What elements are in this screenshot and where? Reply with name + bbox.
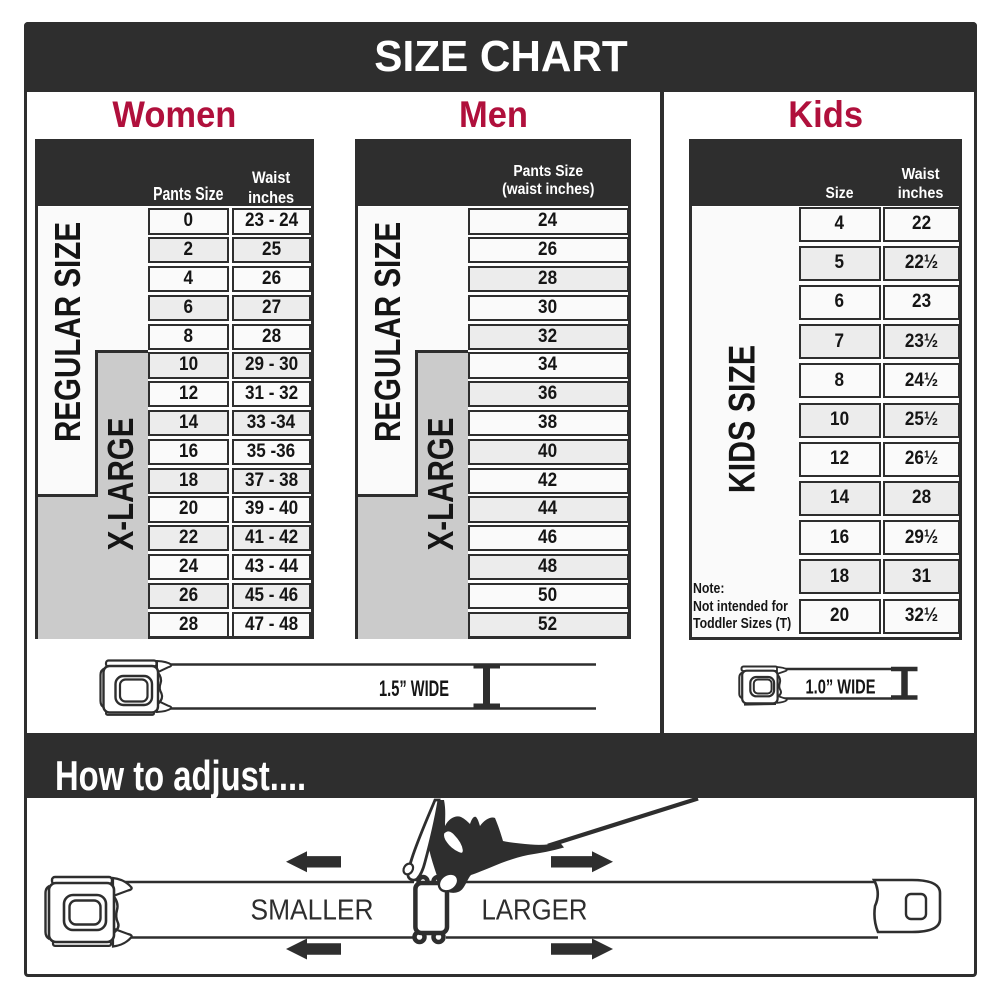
svg-text:SMALLER: SMALLER — [251, 895, 374, 927]
svg-text:1.0” WIDE: 1.0” WIDE — [806, 675, 876, 698]
svg-text:1.5” WIDE: 1.5” WIDE — [379, 676, 449, 701]
svg-text:LARGER: LARGER — [482, 895, 588, 927]
